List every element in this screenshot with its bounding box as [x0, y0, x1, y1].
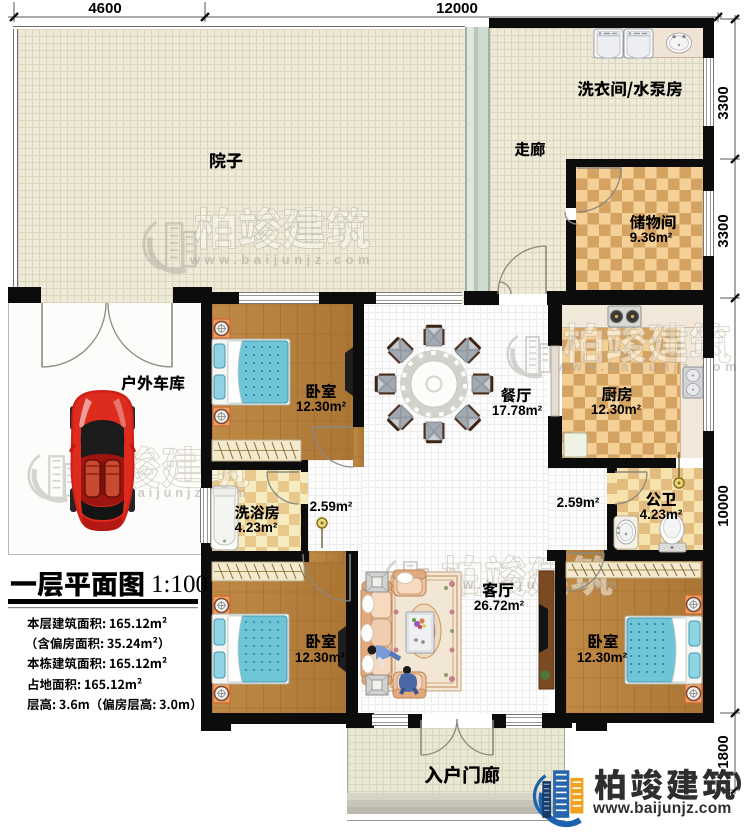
- svg-text:26.72m²: 26.72m²: [474, 598, 525, 613]
- svg-text:9.36m²: 9.36m²: [630, 230, 673, 245]
- svg-text:12000: 12000: [436, 0, 478, 17]
- svg-text:4.23m²: 4.23m²: [640, 507, 683, 522]
- svg-text:1:100: 1:100: [151, 571, 208, 598]
- svg-text:4.23m²: 4.23m²: [235, 520, 278, 535]
- svg-text:2.59m²: 2.59m²: [310, 499, 353, 514]
- svg-text:3300: 3300: [715, 86, 732, 119]
- svg-text:12.30m²: 12.30m²: [591, 402, 642, 417]
- svg-text:10000: 10000: [715, 485, 732, 527]
- svg-text:12.30m²: 12.30m²: [296, 399, 347, 414]
- svg-text:2.59m²: 2.59m²: [557, 495, 600, 510]
- svg-text:17.78m²: 17.78m²: [492, 403, 543, 418]
- svg-text:12.30m²: 12.30m²: [295, 650, 346, 665]
- svg-text:1800: 1800: [715, 735, 732, 768]
- svg-text:4600: 4600: [88, 0, 121, 17]
- svg-text:3300: 3300: [715, 214, 732, 247]
- svg-text:www.baijunjz.com: www.baijunjz.com: [592, 800, 732, 817]
- svg-text:12.30m²: 12.30m²: [577, 650, 628, 665]
